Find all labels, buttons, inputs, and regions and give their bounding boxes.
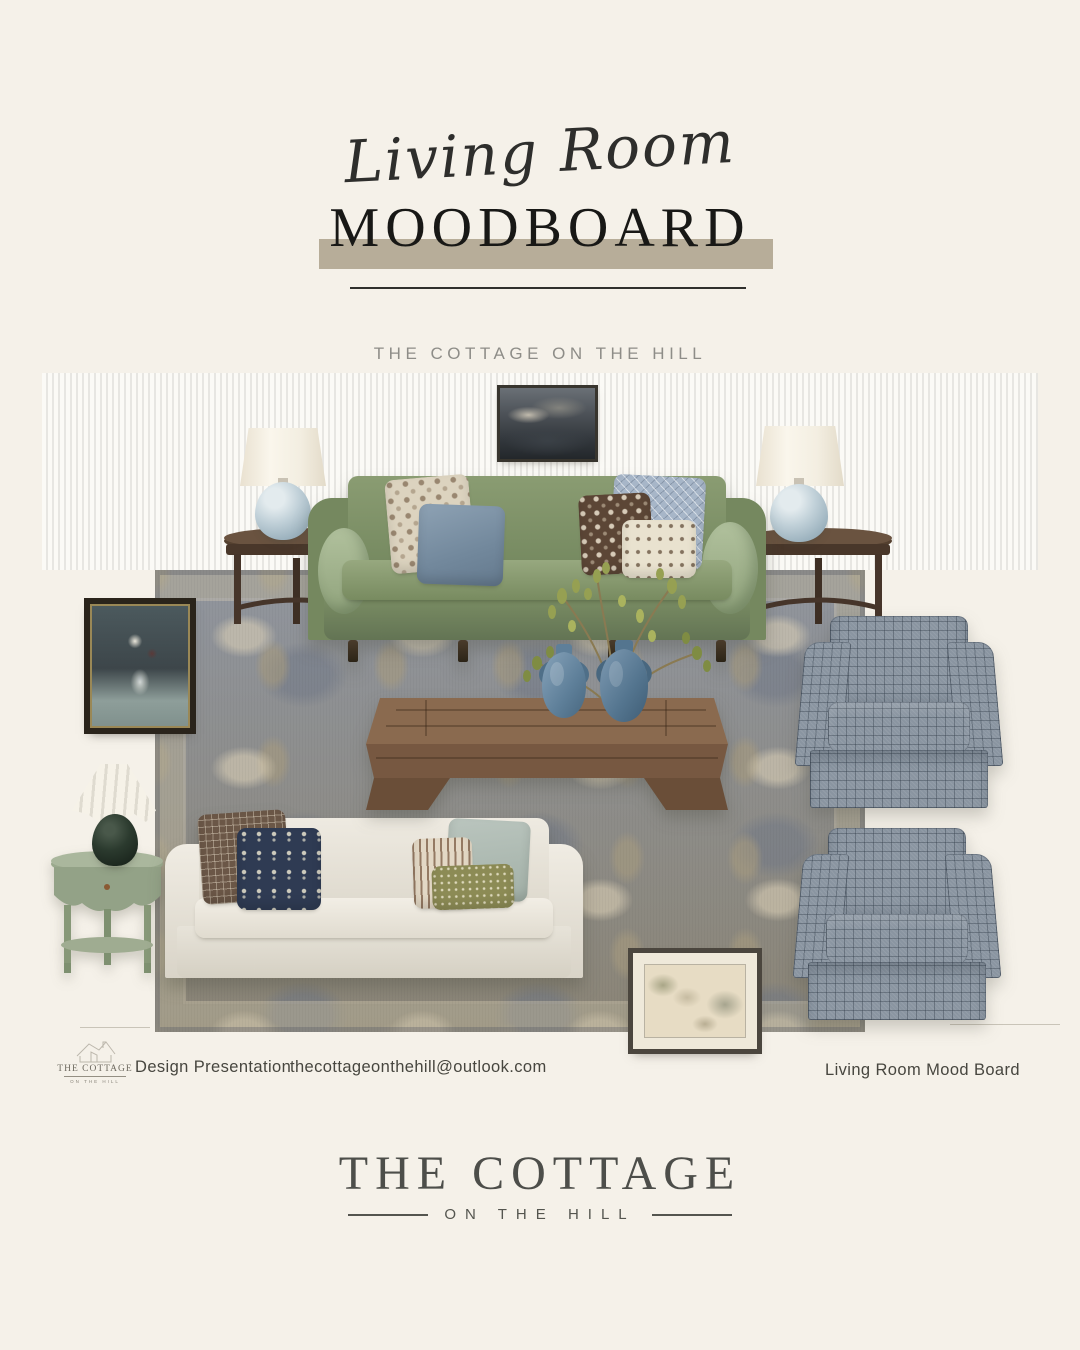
brand-tagline-row: ON THE HILL (0, 1206, 1080, 1223)
cloudscape-wall-art (497, 385, 598, 462)
chair-back-cushion (830, 616, 968, 712)
botanical-art (645, 965, 745, 1037)
moodboard-poster: Living Room MOODBOARD THE COTTAGE ON THE… (0, 0, 1080, 1350)
brand-name: THE COTTAGE (0, 1146, 1080, 1201)
layout-line (950, 1024, 1060, 1025)
blue-velvet-pillow (417, 504, 506, 587)
check-armchair-bottom (798, 822, 996, 1024)
table-lamp-right-base (770, 484, 828, 542)
layout-line (80, 1027, 150, 1028)
blue-vase-left (535, 644, 593, 720)
footer-logo-rule (64, 1076, 126, 1077)
table-lamp-right-shade (756, 426, 844, 486)
sage-round-side-table (50, 851, 165, 975)
script-title: Living Room (0, 90, 1080, 214)
presentation-label: Design Presentation (135, 1058, 291, 1077)
page-title: MOODBOARD (0, 200, 1080, 256)
board-label: Living Room Mood Board (825, 1061, 1020, 1080)
brand-line-left (348, 1214, 428, 1216)
blue-vase-right (592, 640, 656, 724)
sofa-leg (348, 640, 358, 662)
footer-logo: THE COTTAGE ON THE HILL (55, 1038, 135, 1084)
cream-sofa (165, 808, 583, 986)
brand-line-right (652, 1214, 732, 1216)
chair-back-cushion (828, 828, 966, 924)
chair-base (810, 750, 988, 808)
brand-tagline: ON THE HILL (444, 1206, 635, 1223)
chair-seat-cushion (828, 702, 970, 754)
title-divider (350, 287, 746, 289)
pleated-lamp-base (92, 814, 138, 866)
navy-block-print-pillow (237, 828, 321, 910)
cottage-sketch-icon (73, 1038, 117, 1064)
floral-still-life-frame (84, 598, 196, 734)
table-lamp-left-base (255, 482, 311, 540)
subtitle: THE COTTAGE ON THE HILL (0, 344, 1080, 364)
footer-logo-tagline: ON THE HILL (55, 1079, 135, 1084)
botanical-art-frame (628, 948, 762, 1054)
check-armchair-top (800, 610, 998, 812)
chair-base (808, 962, 986, 1020)
olive-lumbar-pillow (431, 864, 514, 911)
contact-email: thecottageonthehill@outlook.com (290, 1058, 547, 1077)
footer-logo-name: THE COTTAGE (55, 1064, 135, 1074)
chair-seat-cushion (826, 914, 968, 966)
